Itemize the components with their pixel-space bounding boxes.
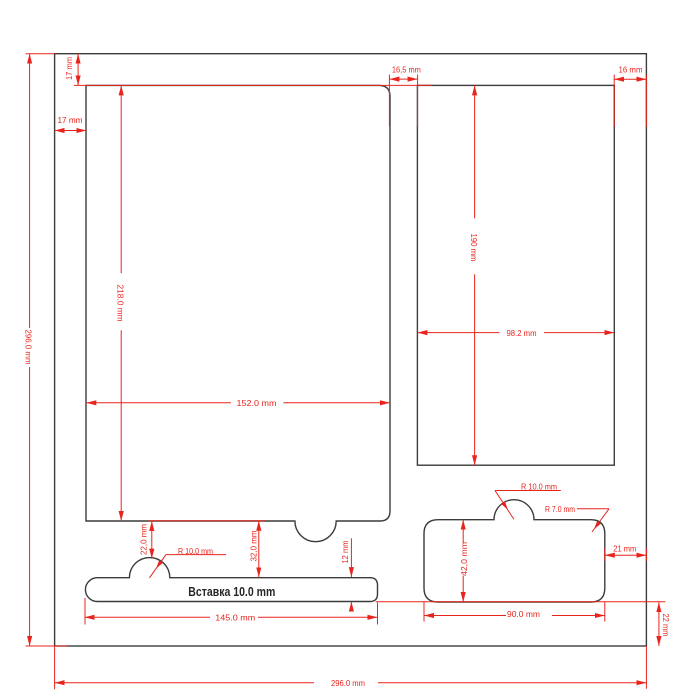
svg-text:145.0 mm: 145.0 mm bbox=[215, 613, 255, 622]
svg-text:42,0 mm: 42,0 mm bbox=[460, 542, 469, 576]
svg-text:R 7.0 mm: R 7.0 mm bbox=[545, 505, 575, 514]
svg-text:32,0 mm: 32,0 mm bbox=[249, 530, 258, 561]
svg-text:90.0 mm: 90.0 mm bbox=[507, 610, 540, 619]
svg-text:218.0 mm: 218.0 mm bbox=[115, 285, 124, 322]
svg-text:296.0 mm: 296.0 mm bbox=[24, 330, 33, 365]
svg-text:22 mm: 22 mm bbox=[661, 614, 670, 637]
svg-text:22,0 mm: 22,0 mm bbox=[139, 524, 148, 555]
svg-text:296.0 mm: 296.0 mm bbox=[331, 679, 365, 688]
svg-text:Вставка 10.0 mm: Вставка 10.0 mm bbox=[188, 584, 275, 599]
svg-text:R 10.0 mm: R 10.0 mm bbox=[178, 547, 213, 556]
svg-text:R 10.0 mm: R 10.0 mm bbox=[521, 482, 557, 491]
svg-text:12 mm: 12 mm bbox=[341, 540, 350, 563]
svg-text:21 mm: 21 mm bbox=[613, 545, 636, 554]
svg-text:16 mm: 16 mm bbox=[619, 65, 643, 74]
svg-text:152.0 mm: 152.0 mm bbox=[237, 399, 277, 408]
svg-text:17 mm: 17 mm bbox=[65, 57, 74, 80]
svg-text:16,5 mm: 16,5 mm bbox=[392, 66, 421, 75]
svg-text:17 mm: 17 mm bbox=[57, 116, 82, 125]
svg-text:98.2 mm: 98.2 mm bbox=[507, 329, 537, 338]
svg-text:190 mm: 190 mm bbox=[469, 234, 478, 262]
